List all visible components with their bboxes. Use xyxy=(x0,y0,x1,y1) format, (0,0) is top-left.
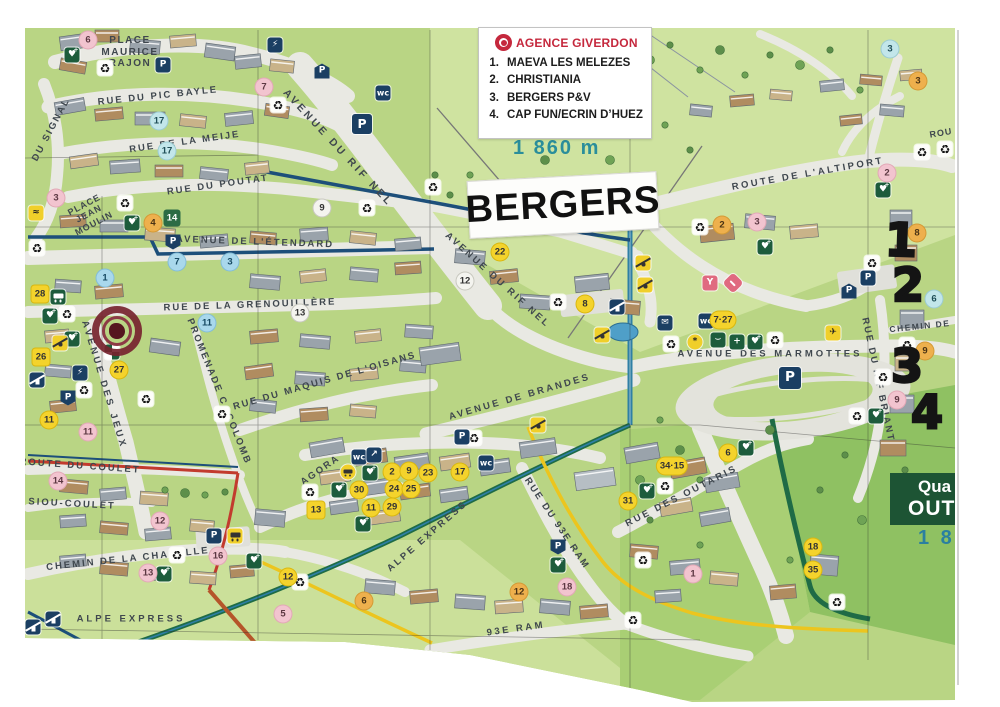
legend-item-number: 2. xyxy=(487,74,499,86)
agency-legend-box: AGENCE GIVERDON 1.MAEVA LES MELEZES2.CHR… xyxy=(478,27,652,139)
legend-title: AGENCE GIVERDON xyxy=(516,36,638,50)
bergers-quarter-sticker: BERGERS xyxy=(467,171,660,239)
legend-title-row: AGENCE GIVERDON xyxy=(495,34,651,51)
legend-item: 1.MAEVA LES MELEZES xyxy=(487,57,651,69)
legend-item-number: 4. xyxy=(487,109,499,121)
legend-item-number: 3. xyxy=(487,92,499,104)
agency-location-target-marker xyxy=(92,306,142,356)
scanned-resort-map-page: PLACE MAURICE RAJONRUE DU PIC BAYLERUE D… xyxy=(0,0,1000,707)
agency-target-icon xyxy=(495,34,512,51)
scan-page-edge xyxy=(957,30,959,685)
legend-item: 3.BERGERS P&V xyxy=(487,92,651,104)
handwritten-number-4: 4 xyxy=(911,389,943,435)
legend-items: 1.MAEVA LES MELEZES2.CHRISTIANIA3.BERGER… xyxy=(487,57,651,122)
handwritten-number-1: 1 xyxy=(884,216,918,263)
handwritten-number-2: 2 xyxy=(892,262,924,308)
handwritten-number-3: 3 xyxy=(891,343,923,389)
quartier-line2: OUT xyxy=(908,497,970,521)
legend-item-label: MAEVA LES MELEZES xyxy=(507,57,630,69)
legend-item-number: 1. xyxy=(487,57,499,69)
altitude-label: 1 860 m xyxy=(513,138,600,158)
legend-item-label: CAP FUN/ECRIN D’HUEZ xyxy=(507,109,643,121)
bergers-title: BERGERS xyxy=(465,181,662,229)
legend-item: 2.CHRISTIANIA xyxy=(487,74,651,86)
quartier-altitude-label: 1 8 xyxy=(918,528,955,548)
legend-item: 4.CAP FUN/ECRIN D’HUEZ xyxy=(487,109,651,121)
quartier-line1: Qua xyxy=(918,477,970,497)
legend-item-label: BERGERS P&V xyxy=(507,92,591,104)
legend-item-label: CHRISTIANIA xyxy=(507,74,581,86)
